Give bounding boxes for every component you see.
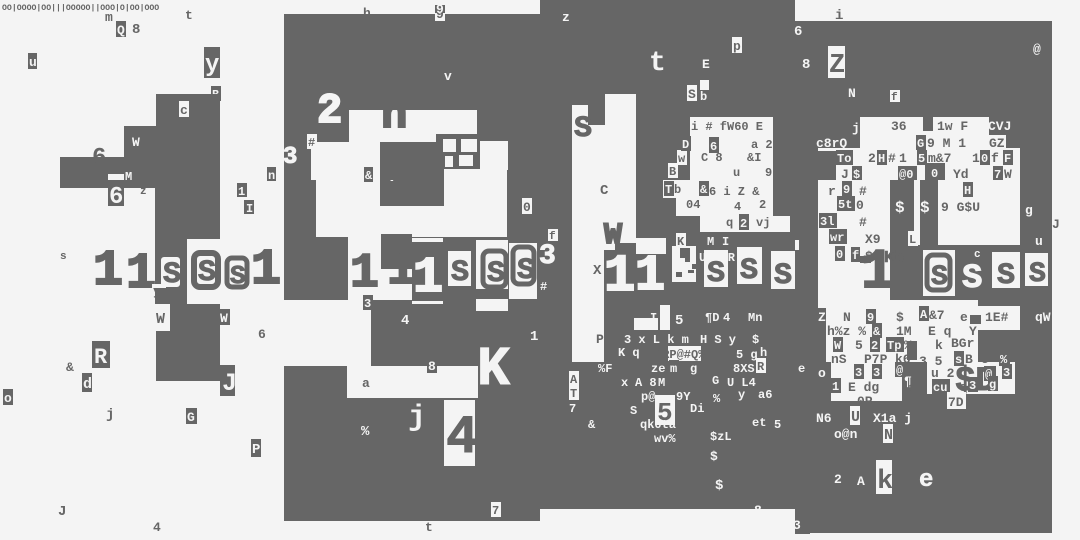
svg-text:M: M	[658, 376, 665, 390]
svg-text:7: 7	[569, 402, 576, 416]
svg-text:E q: E q	[928, 324, 951, 339]
svg-text:u: u	[733, 166, 740, 180]
svg-text:nS: nS	[831, 352, 847, 367]
svg-text:$zL: $zL	[710, 430, 732, 444]
svg-text:m: m	[105, 10, 113, 25]
svg-text:6: 6	[109, 184, 123, 211]
svg-text:P: P	[252, 442, 260, 458]
svg-text:5t: 5t	[838, 198, 852, 212]
svg-text:2: 2	[868, 151, 876, 166]
svg-text:t: t	[185, 8, 193, 23]
svg-text:GZ: GZ	[989, 136, 1005, 151]
svg-text:1: 1	[604, 247, 635, 306]
svg-text:I: I	[722, 235, 729, 249]
svg-text:S: S	[487, 257, 505, 291]
svg-text:k: k	[935, 338, 943, 353]
svg-text:a: a	[362, 376, 370, 391]
svg-text:a6: a6	[758, 388, 772, 402]
svg-text:u: u	[29, 55, 37, 70]
svg-text:t: t	[649, 48, 666, 79]
svg-text:&: &	[700, 183, 708, 197]
svg-text:9: 9	[867, 311, 874, 325]
svg-text:Tp: Tp	[887, 339, 901, 353]
svg-text:H: H	[878, 152, 885, 166]
svg-text:s: s	[60, 251, 67, 263]
svg-text:p: p	[733, 39, 741, 54]
svg-text:W: W	[220, 311, 228, 326]
svg-text:b: b	[674, 183, 681, 197]
svg-text:Z: Z	[829, 51, 845, 81]
svg-text:7: 7	[492, 504, 499, 518]
svg-text:¶D: ¶D	[705, 311, 719, 325]
svg-text:h%z %: h%z %	[827, 324, 866, 339]
svg-text:p@: p@	[641, 390, 655, 404]
svg-text:3: 3	[855, 366, 862, 380]
svg-text:M: M	[707, 235, 714, 249]
svg-text:4: 4	[734, 200, 741, 214]
svg-text:7D: 7D	[948, 395, 964, 410]
svg-text:S: S	[707, 257, 725, 291]
svg-text:z: z	[140, 186, 147, 198]
svg-text:$: $	[710, 449, 718, 464]
svg-text:6 i Z &: 6 i Z &	[709, 185, 760, 199]
svg-text:N: N	[843, 310, 851, 325]
svg-text:7: 7	[994, 168, 1001, 182]
svg-text:@: @	[896, 364, 903, 378]
svg-text:S: S	[774, 259, 792, 293]
svg-text:$: $	[896, 310, 904, 325]
svg-text:9 M 1: 9 M 1	[927, 136, 966, 151]
svg-text:R: R	[94, 345, 108, 370]
svg-text:9: 9	[765, 166, 772, 180]
svg-text:ze: ze	[651, 362, 665, 376]
svg-text:J: J	[1052, 217, 1060, 232]
svg-text:D: D	[682, 138, 689, 152]
svg-text:E: E	[702, 57, 710, 72]
svg-text:8: 8	[754, 503, 762, 518]
svg-text:f: f	[891, 92, 898, 104]
svg-text:N: N	[884, 427, 893, 444]
svg-text:y: y	[738, 388, 745, 402]
svg-text:u 2: u 2	[931, 366, 955, 381]
svg-text:B: B	[669, 165, 676, 179]
svg-text:6: 6	[794, 24, 802, 40]
svg-text:S: S	[230, 261, 246, 291]
svg-text:qk0ta: qk0ta	[640, 418, 676, 432]
svg-text:m: m	[670, 362, 677, 376]
svg-text:1: 1	[635, 248, 665, 305]
svg-text:F: F	[1004, 152, 1011, 166]
svg-text:3: 3	[908, 382, 916, 397]
svg-text:j: j	[408, 401, 426, 435]
svg-text:n: n	[268, 169, 275, 183]
svg-text:T: T	[665, 183, 672, 197]
svg-text:0: 0	[523, 200, 531, 215]
svg-text:h: h	[760, 346, 767, 360]
svg-text:3: 3	[969, 379, 976, 393]
svg-text:5: 5	[675, 313, 683, 329]
svg-text:W: W	[132, 135, 140, 150]
svg-text:o: o	[4, 391, 12, 406]
svg-text:H: H	[964, 184, 971, 198]
svg-text:8: 8	[802, 57, 810, 73]
svg-text:8: 8	[428, 359, 436, 374]
svg-text:Z: Z	[818, 310, 826, 325]
svg-text:8XS: 8XS	[733, 362, 755, 376]
svg-text:f: f	[991, 151, 999, 166]
svg-text:3: 3	[364, 297, 371, 311]
svg-text:c: c	[974, 249, 981, 261]
svg-text:K q: K q	[618, 346, 640, 360]
svg-text:%: %	[361, 424, 370, 440]
svg-text:3: 3	[793, 518, 801, 533]
svg-text:4: 4	[401, 313, 409, 329]
svg-text:1: 1	[238, 185, 245, 199]
svg-text:d: d	[83, 376, 92, 393]
svg-text:3l: 3l	[820, 215, 834, 229]
svg-text:C: C	[600, 183, 609, 199]
svg-text:$: $	[853, 168, 860, 182]
svg-text:C 8: C 8	[701, 151, 723, 165]
svg-text:1w F: 1w F	[937, 119, 968, 134]
svg-text:I: I	[246, 202, 253, 216]
svg-text:x: x	[621, 376, 628, 390]
svg-text:M: M	[125, 170, 132, 184]
svg-text:G: G	[917, 137, 924, 151]
svg-text:2: 2	[740, 217, 747, 231]
svg-text:S: S	[574, 112, 592, 146]
svg-text:S: S	[962, 260, 982, 298]
svg-text:W: W	[1004, 167, 1012, 182]
svg-text:3 x L k m: 3 x L k m	[624, 333, 689, 347]
svg-text:3: 3	[539, 241, 556, 272]
svg-text:S: S	[740, 254, 758, 288]
svg-text:1E#: 1E#	[985, 310, 1009, 325]
svg-text:&: &	[66, 360, 74, 375]
svg-text:1: 1	[350, 247, 379, 301]
svg-text:5 g: 5 g	[736, 348, 758, 362]
svg-text:A: A	[920, 308, 928, 322]
svg-text:1: 1	[530, 329, 538, 345]
svg-text:9Y: 9Y	[676, 390, 691, 404]
svg-text:S: S	[931, 262, 948, 293]
svg-text:E dg: E dg	[848, 380, 879, 395]
svg-text:U: U	[851, 409, 860, 426]
svg-text:&: &	[588, 418, 596, 432]
svg-text:R: R	[757, 360, 765, 374]
svg-text:g: g	[989, 378, 996, 392]
svg-text:%: %	[713, 392, 721, 406]
svg-text:&: &	[873, 325, 881, 339]
svg-text:$: $	[895, 199, 905, 217]
svg-text:o@n: o@n	[834, 427, 858, 442]
svg-text:1: 1	[899, 151, 907, 166]
svg-text:S: S	[517, 254, 535, 288]
svg-text:2: 2	[759, 198, 766, 212]
svg-text:W: W	[834, 339, 842, 353]
svg-text:i # fW60 E: i # fW60 E	[691, 120, 763, 134]
svg-text:$: $	[920, 199, 930, 217]
svg-text:e: e	[919, 467, 933, 494]
svg-text:c: c	[180, 103, 188, 118]
svg-text:j: j	[106, 407, 114, 423]
svg-text:S: S	[997, 259, 1015, 293]
svg-text:0: 0	[856, 198, 864, 213]
svg-text:k: k	[877, 467, 893, 497]
svg-text:8: 8	[132, 22, 140, 38]
svg-text:$: $	[715, 478, 723, 494]
svg-text:g: g	[690, 362, 697, 376]
svg-text:Yd: Yd	[953, 167, 969, 182]
svg-text:P: P	[596, 332, 604, 347]
svg-text:6: 6	[258, 327, 266, 342]
svg-text:%F: %F	[598, 362, 612, 376]
svg-text:t: t	[425, 520, 433, 535]
svg-text:0: 0	[931, 167, 938, 181]
svg-text:3: 3	[283, 144, 297, 171]
svg-text:e: e	[960, 310, 968, 325]
svg-text:W: W	[156, 311, 165, 328]
svg-text:i: i	[835, 8, 843, 24]
svg-text:vj: vj	[756, 216, 770, 230]
svg-text:&: &	[365, 169, 373, 183]
svg-text:j: j	[852, 121, 860, 136]
svg-text:y: y	[205, 52, 219, 79]
svg-text:q: q	[726, 216, 733, 230]
svg-text:X: X	[593, 263, 602, 279]
svg-text:5: 5	[918, 152, 925, 166]
svg-text:v: v	[444, 69, 452, 84]
svg-text:1: 1	[93, 243, 123, 300]
svg-text:wv%: wv%	[654, 432, 676, 446]
svg-text:S: S	[630, 404, 637, 418]
svg-text:w: w	[678, 152, 686, 166]
svg-text:J: J	[841, 167, 849, 182]
svg-text:0: 0	[836, 248, 843, 262]
svg-text:o: o	[818, 366, 826, 381]
svg-text:qW: qW	[1035, 310, 1051, 325]
svg-text:&7: &7	[929, 308, 945, 323]
svg-text:f: f	[852, 249, 859, 263]
svg-text:J: J	[222, 369, 237, 398]
svg-text:1: 1	[387, 244, 416, 298]
svg-text:$: $	[752, 333, 759, 347]
svg-text:cu: cu	[933, 381, 947, 395]
svg-text:1: 1	[972, 151, 980, 166]
svg-text:4: 4	[446, 408, 478, 469]
svg-text:1M: 1M	[896, 324, 912, 339]
svg-text:@0: @0	[899, 168, 913, 182]
svg-text:G: G	[187, 410, 195, 425]
svg-text:&I: &I	[747, 151, 761, 165]
svg-text:1: 1	[832, 380, 839, 394]
svg-text:3: 3	[873, 366, 880, 380]
svg-text:To: To	[837, 152, 851, 166]
svg-text:#: #	[859, 184, 867, 199]
svg-text:5: 5	[774, 418, 781, 432]
svg-text:3: 3	[1003, 366, 1010, 380]
svg-text:CVJ: CVJ	[988, 119, 1011, 134]
svg-text:OO|OOOO|OO|||OOOOO||OOO|O|OO|O: OO|OOOO|OO|||OOOOO||OOO|O|OO|OOO	[2, 3, 159, 13]
svg-text:6: 6	[92, 145, 106, 172]
svg-text:N: N	[848, 86, 856, 101]
svg-text:Q: Q	[117, 23, 125, 38]
svg-text:et: et	[752, 416, 766, 430]
svg-text:2: 2	[871, 339, 878, 353]
svg-text:u: u	[1035, 234, 1043, 249]
svg-text:#: #	[308, 136, 315, 150]
svg-text:J: J	[58, 504, 66, 520]
svg-text:04: 04	[686, 198, 700, 212]
svg-text:1: 1	[861, 240, 895, 304]
svg-text:L: L	[909, 233, 916, 247]
svg-text:@: @	[1033, 42, 1041, 57]
svg-text:S: S	[688, 87, 696, 102]
svg-text:9: 9	[843, 183, 850, 197]
svg-text:9: 9	[436, 2, 444, 17]
svg-text:A 8: A 8	[635, 376, 657, 390]
svg-text:0: 0	[981, 152, 988, 166]
svg-text:S: S	[1029, 259, 1046, 290]
svg-text:g: g	[1025, 203, 1033, 218]
svg-text:T: T	[570, 387, 577, 401]
svg-text:9 G$U: 9 G$U	[941, 200, 980, 215]
svg-text:z: z	[562, 10, 570, 25]
svg-text:4RP@#Q%: 4RP@#Q%	[655, 348, 706, 362]
svg-text:1: 1	[251, 242, 281, 299]
svg-text:2: 2	[317, 87, 342, 135]
svg-text:36: 36	[891, 119, 907, 134]
svg-text:S: S	[451, 256, 469, 290]
svg-text:1: 1	[413, 250, 443, 307]
svg-text:h: h	[363, 6, 371, 21]
svg-text:wr: wr	[830, 231, 844, 245]
svg-text:4: 4	[723, 311, 730, 325]
svg-text:#: #	[888, 151, 896, 166]
svg-text:Di: Di	[690, 402, 704, 416]
svg-text:b: b	[700, 90, 707, 104]
svg-text:BGr: BGr	[951, 336, 974, 351]
svg-text:#: #	[540, 280, 547, 294]
svg-text:4: 4	[153, 520, 161, 535]
svg-text:X1a j: X1a j	[873, 411, 912, 426]
svg-text:n: n	[381, 91, 407, 141]
svg-text:r: r	[828, 184, 836, 199]
svg-text:Mn: Mn	[748, 311, 762, 325]
svg-text:H S y: H S y	[700, 333, 736, 347]
svg-text:1: 1	[126, 246, 156, 303]
svg-text:5: 5	[855, 338, 863, 353]
svg-text:K: K	[477, 338, 510, 401]
svg-text:N6: N6	[816, 411, 832, 426]
svg-text:A: A	[570, 373, 578, 387]
svg-text:S: S	[198, 256, 216, 290]
svg-text:G: G	[712, 374, 719, 388]
svg-text:#: #	[859, 215, 867, 230]
svg-text:2: 2	[834, 472, 842, 487]
svg-text:e: e	[798, 362, 805, 376]
svg-text:a 2: a 2	[751, 138, 773, 152]
svg-text:A: A	[857, 474, 865, 489]
